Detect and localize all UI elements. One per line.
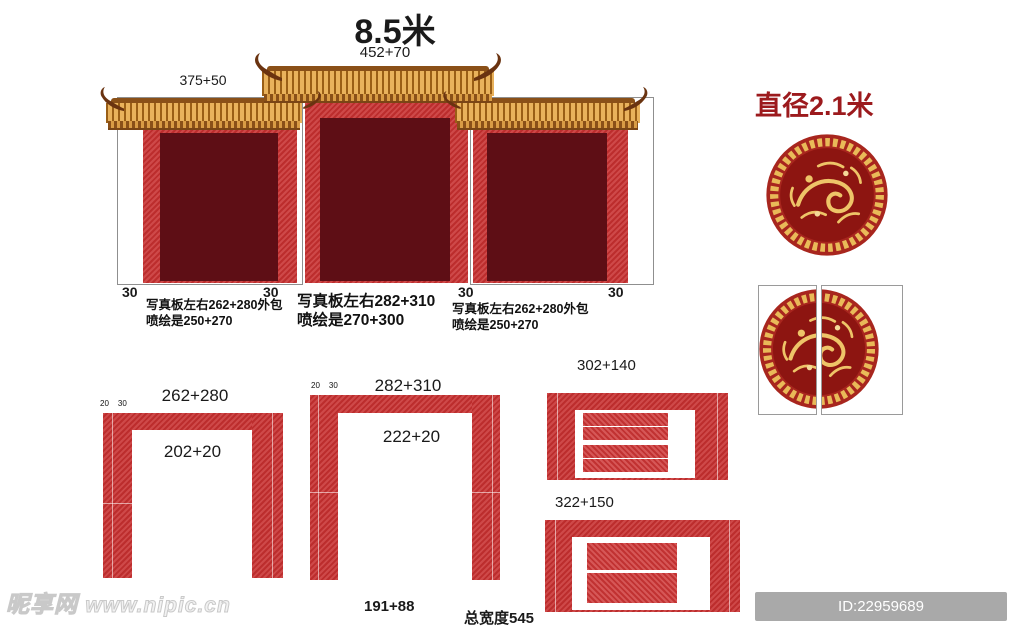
spec-note-line: 喷绘是270+300 bbox=[297, 311, 457, 330]
banner-a-window bbox=[575, 410, 695, 478]
corner-dim: 30 bbox=[329, 381, 338, 390]
frame-b-left-column bbox=[310, 395, 338, 580]
gate-center-panel-print-area bbox=[320, 118, 450, 281]
fold-line bbox=[555, 520, 556, 612]
center-panel-spec-note: 写真板左右282+310 喷绘是270+300 bbox=[297, 292, 457, 330]
center-roof-dimension: 452+70 bbox=[330, 44, 440, 61]
dragon-medallion-icon bbox=[765, 133, 889, 257]
fold-line bbox=[272, 413, 273, 578]
spec-note-line: 喷绘是250+270 bbox=[452, 317, 622, 333]
frame-a-right-column bbox=[252, 413, 283, 578]
medallion-split-right-panel bbox=[821, 285, 903, 415]
fold-line bbox=[103, 503, 132, 504]
spec-note-line: 喷绘是250+270 bbox=[146, 313, 316, 329]
site-watermark: 昵享网 www.nipic.cn bbox=[6, 585, 231, 619]
frame-a-left-column bbox=[103, 413, 132, 578]
frame-b-opening-dimension: 222+20 bbox=[364, 427, 459, 447]
banner-a-strip bbox=[583, 413, 668, 426]
medallion-split-left-panel bbox=[758, 285, 817, 415]
fold-line bbox=[112, 413, 113, 578]
stock-id-bar: ID:22959689 NO:20241221142814270109 bbox=[755, 592, 1007, 621]
roof-junction-horn-icon bbox=[440, 90, 462, 110]
gate-right-panel bbox=[473, 124, 628, 283]
roof-corner-horn-icon bbox=[622, 86, 652, 112]
fold-line bbox=[729, 520, 730, 612]
corner-dim: 20 bbox=[311, 381, 320, 390]
banner-a-strip bbox=[583, 459, 668, 472]
edge-dimension-30: 30 bbox=[458, 284, 474, 300]
frame-a-top-dimension: 262+280 bbox=[140, 386, 250, 406]
right-panel-spec-note: 写真板左右262+280外包 喷绘是250+270 bbox=[452, 301, 622, 333]
frame-a-opening-dimension: 202+20 bbox=[145, 442, 240, 462]
corner-dim: 20 bbox=[100, 399, 109, 408]
frame-b-bottom-dimension: 191+88 bbox=[364, 598, 414, 615]
right-roof-eave-fringe bbox=[457, 121, 638, 130]
frame-b-right-column bbox=[472, 395, 500, 580]
fold-line bbox=[717, 393, 718, 480]
total-width-note: 总宽度545 bbox=[464, 607, 534, 628]
banner-b-strip bbox=[587, 573, 677, 603]
roof-junction-horn-icon bbox=[302, 90, 324, 110]
design-proof-canvas: 8.5米 452+70 375+50 30 30 30 30 写真板左右262+… bbox=[0, 0, 1024, 634]
spec-note-line: 写真板左右282+310 bbox=[297, 292, 457, 311]
corner-dim: 30 bbox=[118, 399, 127, 408]
fold-line bbox=[492, 395, 493, 580]
edge-dimension-30: 30 bbox=[122, 284, 138, 300]
banner-b-strip bbox=[587, 543, 677, 570]
spec-note-line: 写真板左右262+280外包 bbox=[146, 297, 316, 313]
roof-corner-horn-icon bbox=[96, 86, 126, 112]
left-panel-spec-note: 写真板左右262+280外包 喷绘是250+270 bbox=[146, 297, 316, 329]
gate-left-panel-print-area bbox=[160, 133, 278, 281]
fold-line bbox=[557, 393, 558, 480]
fold-line bbox=[318, 395, 319, 580]
roof-corner-horn-icon bbox=[250, 52, 284, 82]
banner-a-strip bbox=[583, 445, 668, 458]
banner-a-size-dimension: 302+140 bbox=[577, 357, 636, 374]
banner-a-frame bbox=[547, 393, 728, 480]
frame-a-corner-dimensions: 20 30 bbox=[100, 399, 127, 408]
dragon-medallion-left-half-icon bbox=[758, 288, 817, 410]
fold-line bbox=[310, 492, 338, 493]
fold-line bbox=[472, 492, 500, 493]
spec-note-line: 写真板左右262+280外包 bbox=[452, 301, 622, 317]
frame-b-corner-dimensions: 20 30 bbox=[311, 381, 338, 390]
left-roof-tiles bbox=[106, 103, 302, 123]
gate-left-panel bbox=[143, 124, 297, 283]
banner-b-frame bbox=[545, 520, 740, 612]
frame-b-top-dimension: 282+310 bbox=[358, 376, 458, 396]
roof-corner-horn-icon bbox=[472, 52, 506, 82]
medallion-diameter-title: 直径2.1米 bbox=[755, 84, 874, 123]
banner-b-window bbox=[572, 537, 710, 610]
banner-a-strip bbox=[583, 427, 668, 440]
edge-dimension-30: 30 bbox=[608, 284, 624, 300]
dragon-medallion-right-half-icon bbox=[821, 288, 880, 410]
watermark-logo-text: 昵享网 bbox=[6, 591, 78, 617]
banner-b-size-dimension: 322+150 bbox=[555, 494, 614, 511]
left-roof-eave-fringe bbox=[108, 121, 300, 130]
gate-center-panel bbox=[305, 103, 468, 283]
watermark-url-text: www.nipic.cn bbox=[85, 594, 230, 617]
left-roof-dimension: 375+50 bbox=[168, 72, 238, 88]
gate-right-panel-print-area bbox=[487, 133, 607, 281]
right-roof-tiles bbox=[455, 103, 640, 123]
